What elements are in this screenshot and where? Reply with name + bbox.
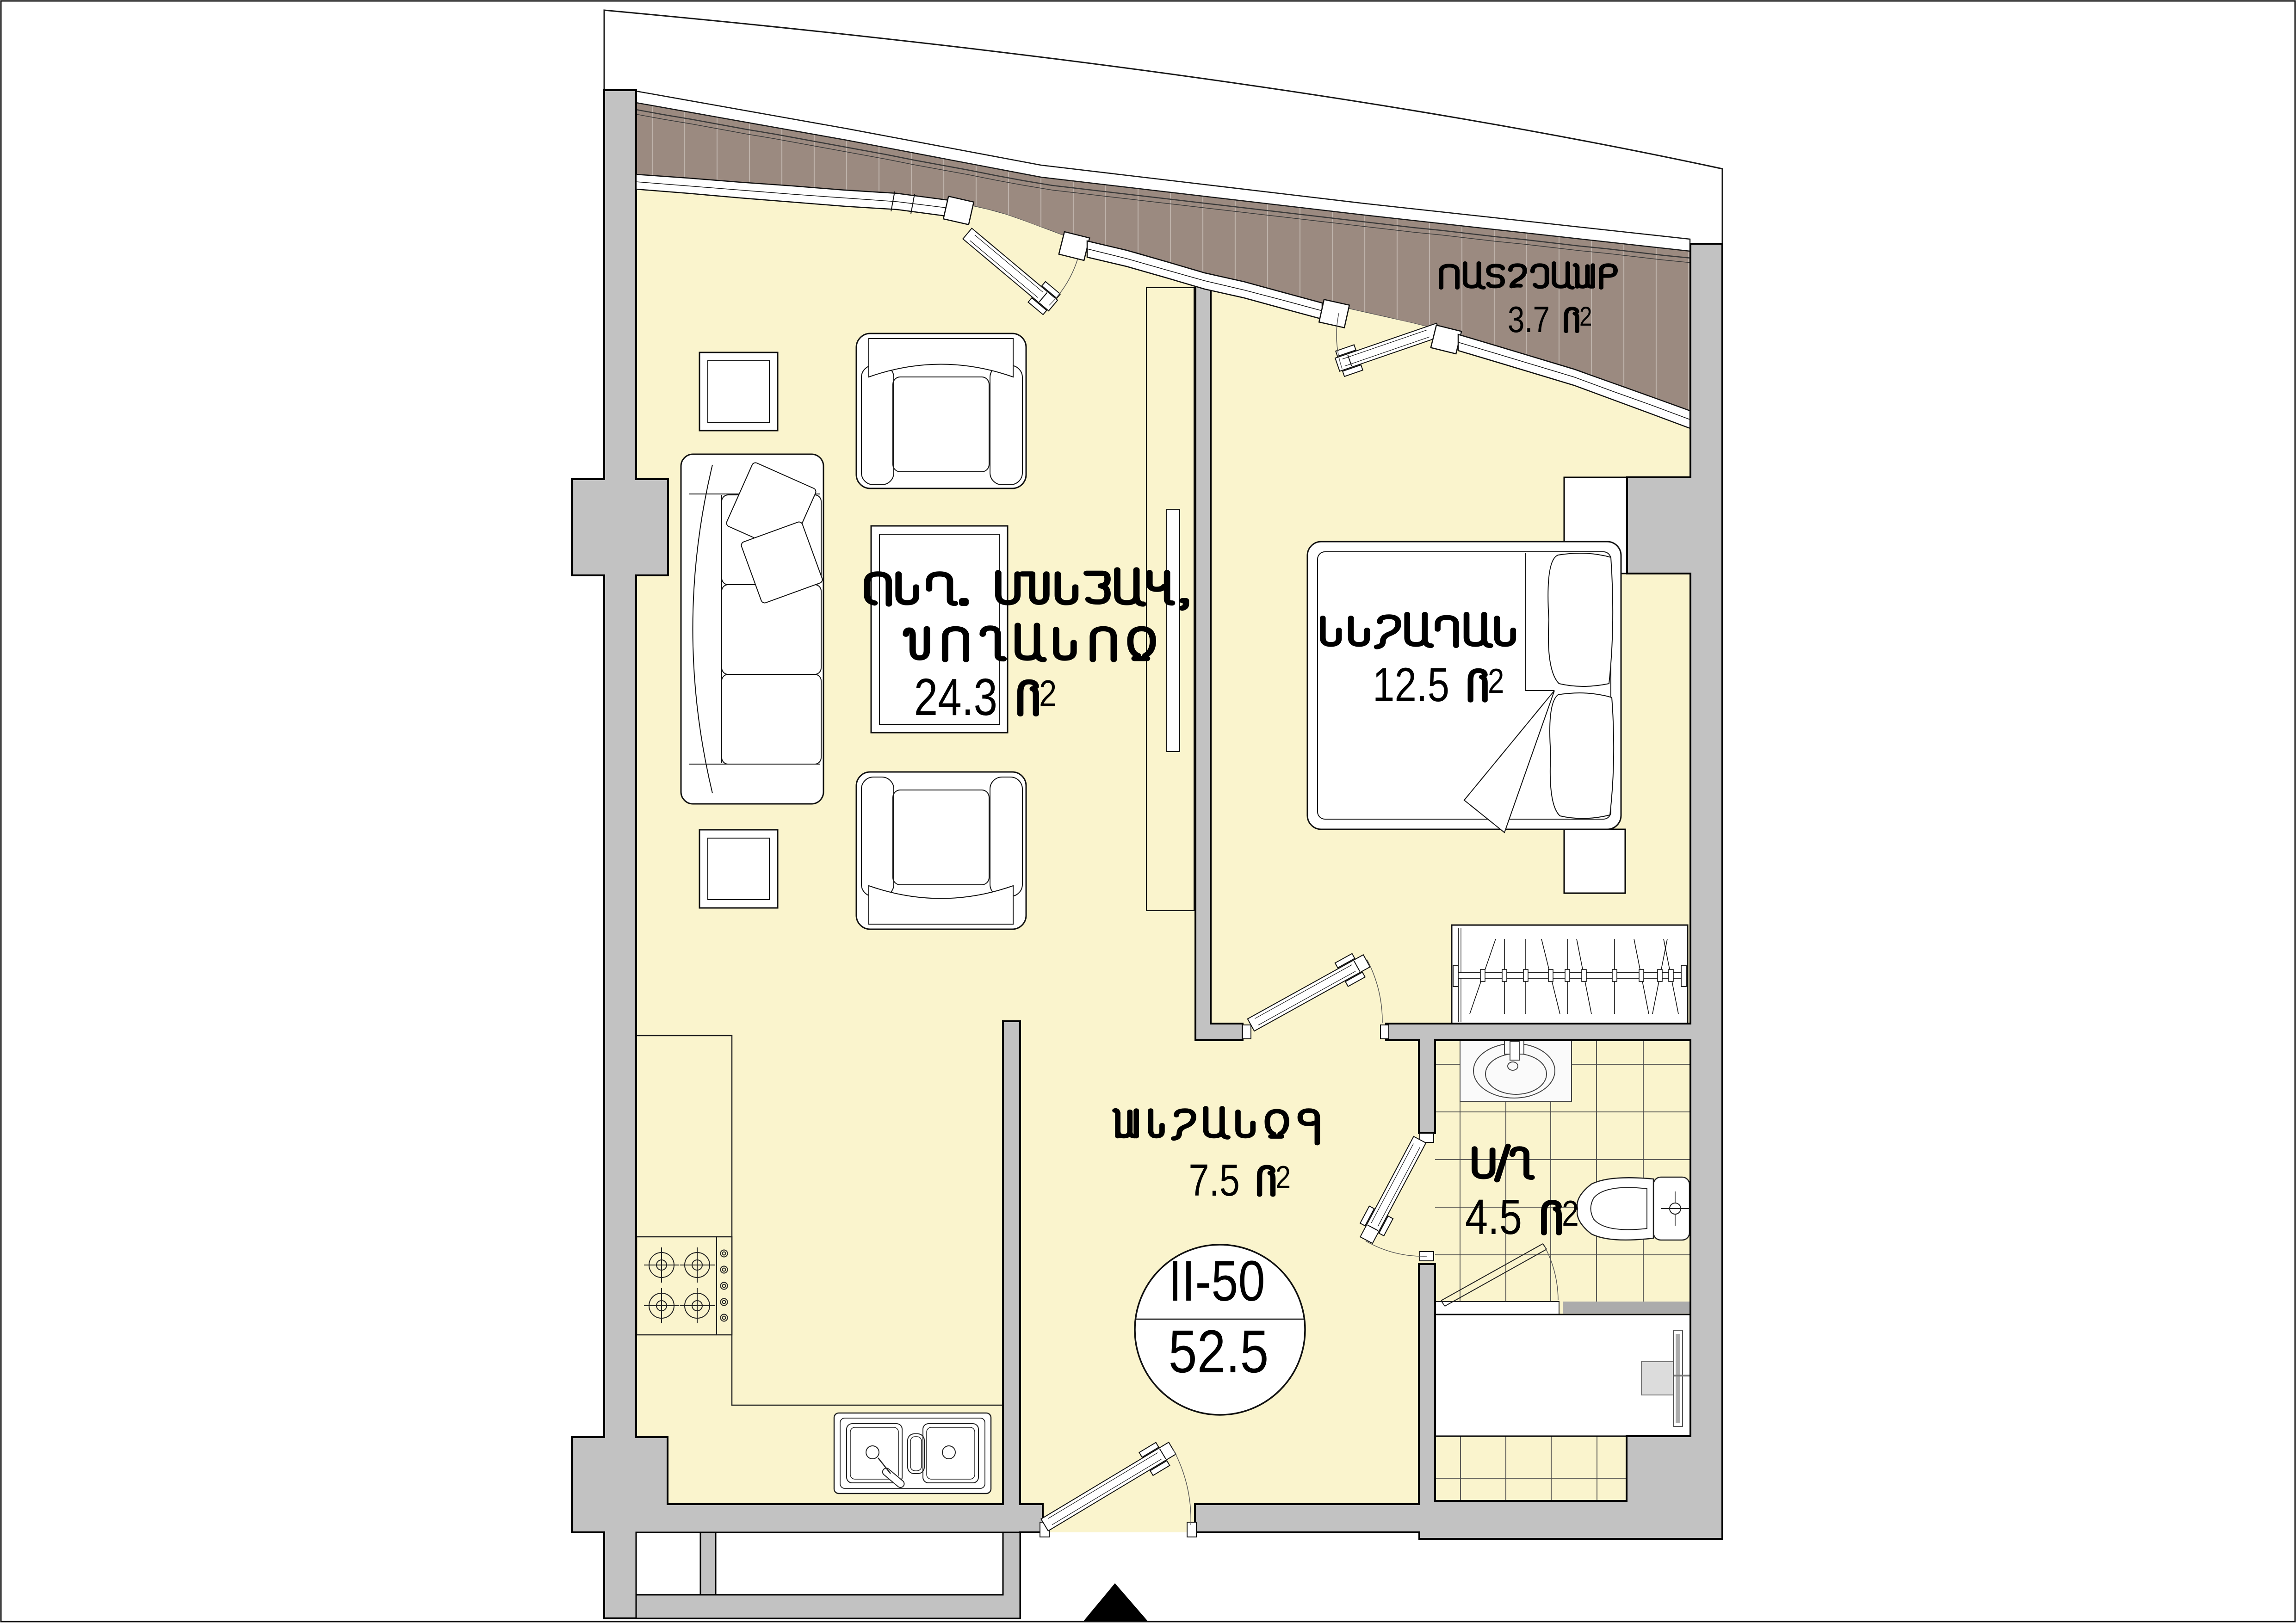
svg-text:2: 2 bbox=[1562, 1193, 1579, 1234]
svg-text:II-50: II-50 bbox=[1168, 1250, 1265, 1313]
svg-text:4.5: 4.5 bbox=[1465, 1189, 1522, 1245]
svg-text:2: 2 bbox=[1488, 661, 1504, 700]
svg-text:12.5: 12.5 bbox=[1373, 658, 1449, 712]
svg-text:2: 2 bbox=[1579, 302, 1592, 332]
svg-text:24.3: 24.3 bbox=[914, 667, 997, 726]
svg-text:7.5: 7.5 bbox=[1188, 1155, 1240, 1205]
svg-text:3.7: 3.7 bbox=[1508, 299, 1550, 340]
svg-text:52.5: 52.5 bbox=[1169, 1317, 1269, 1385]
svg-text:2: 2 bbox=[1275, 1159, 1291, 1195]
svg-text:2: 2 bbox=[1039, 673, 1057, 715]
